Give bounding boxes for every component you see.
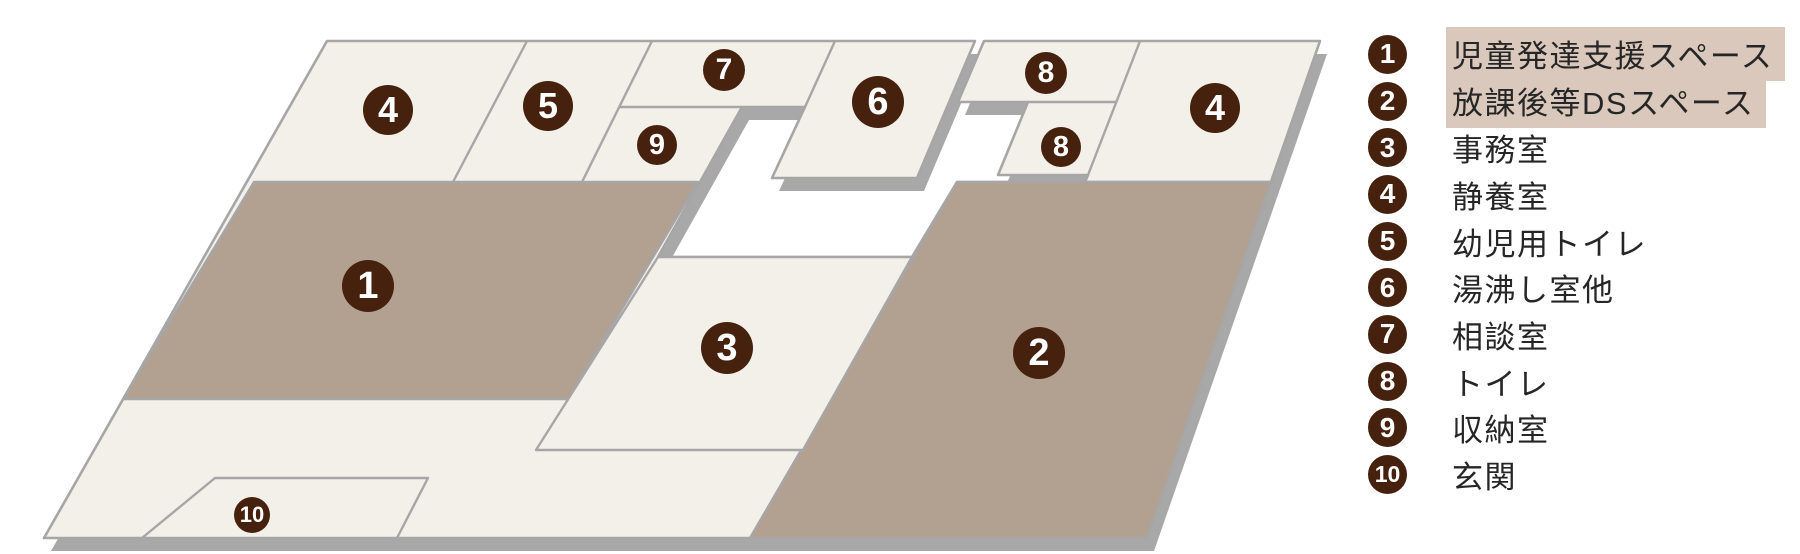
legend-label-3: 事務室 xyxy=(1452,125,1550,170)
legend-item-9: 9収納室 xyxy=(1368,405,1785,452)
floor-plan-figure: 1234456788910 1児童発達支援スペース2放課後等DSスペース3事務室… xyxy=(0,0,1800,554)
legend-label-4: 静養室 xyxy=(1452,172,1550,217)
legend-badge-8: 8 xyxy=(1368,362,1407,401)
plan-badge-7: 7 xyxy=(703,49,745,91)
legend-item-10: 10玄関 xyxy=(1368,451,1785,498)
plan-badge-5: 5 xyxy=(523,81,573,131)
legend-badge-1: 1 xyxy=(1368,35,1407,74)
legend-badge-5: 5 xyxy=(1368,222,1407,261)
legend-label-7: 相談室 xyxy=(1452,312,1550,357)
legend-label-6: 湯沸し室他 xyxy=(1452,265,1615,310)
legend-label-10: 玄関 xyxy=(1452,452,1517,497)
legend-label-5: 幼児用トイレ xyxy=(1452,219,1647,264)
plan-badge-2: 2 xyxy=(1013,327,1065,379)
legend-badge-3: 3 xyxy=(1368,128,1407,167)
plan-badge-3: 3 xyxy=(701,322,753,374)
legend-badge-2: 2 xyxy=(1368,82,1407,121)
legend-item-6: 6湯沸し室他 xyxy=(1368,264,1785,311)
legend-item-5: 5幼児用トイレ xyxy=(1368,218,1785,265)
legend-item-1: 1児童発達支援スペース xyxy=(1368,31,1785,78)
legend-badge-7: 7 xyxy=(1368,315,1407,354)
plan-badge-1: 1 xyxy=(342,260,394,312)
legend-badge-9: 9 xyxy=(1368,408,1407,447)
legend-label-9: 収納室 xyxy=(1452,405,1550,450)
plan-badge-6: 6 xyxy=(852,76,904,128)
legend-item-3: 3事務室 xyxy=(1368,124,1785,171)
legend-item-8: 8トイレ xyxy=(1368,358,1785,405)
plan-badge-4: 4 xyxy=(363,85,413,135)
legend-item-4: 4静養室 xyxy=(1368,171,1785,218)
legend-item-7: 7相談室 xyxy=(1368,311,1785,358)
legend-label-8: トイレ xyxy=(1452,359,1550,404)
legend-item-2: 2放課後等DSスペース xyxy=(1368,78,1785,125)
legend-badge-6: 6 xyxy=(1368,268,1407,307)
legend-badge-10: 10 xyxy=(1368,455,1407,494)
plan-badge-8: 8 xyxy=(1025,52,1067,94)
plan-badge-10: 10 xyxy=(234,497,270,533)
legend-badge-4: 4 xyxy=(1368,175,1407,214)
plan-badge-4: 4 xyxy=(1190,83,1240,133)
plan-badge-9: 9 xyxy=(637,125,677,165)
legend-label-2: 放課後等DSスペース xyxy=(1446,74,1766,128)
plan-badge-8: 8 xyxy=(1041,127,1081,167)
legend: 1児童発達支援スペース2放課後等DSスペース3事務室4静養室5幼児用トイレ6湯沸… xyxy=(1368,31,1785,498)
